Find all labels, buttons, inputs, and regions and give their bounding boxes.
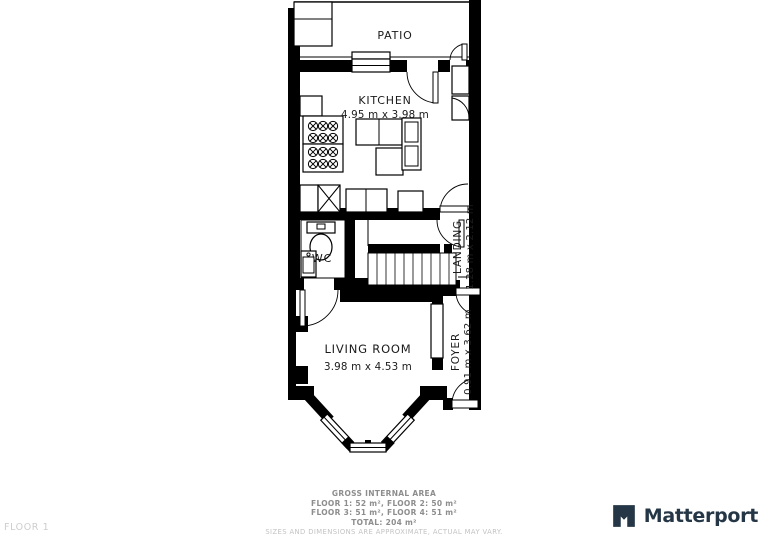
patio-label: PATIO [377,29,412,42]
disclaimer-text: SIZES AND DIMENSIONS ARE APPROXIMATE, AC… [0,528,768,538]
kitchen-fixtures [300,66,469,212]
bay-window [308,394,428,452]
gia-title: GROSS INTERNAL AREA [0,489,768,499]
matterport-branding: Matterport [611,503,758,529]
matterport-logo-icon [611,503,637,529]
landing-dims: 1.28 m x 2.12 m [465,204,476,290]
living-room-dims: 3.98 m x 4.53 m [324,361,412,373]
matterport-wordmark: Matterport [644,505,758,527]
foyer-label: FOYER [450,333,462,371]
kitchen-dims: 4.95 m x 3.98 m [341,109,429,121]
living-room-label: LIVING ROOM [324,342,411,356]
wc-fixtures [301,220,345,278]
floorplan-drawing: PATIO KITCHEN 4.95 m x 3.98 m WC LANDING… [0,0,768,480]
landing-label: LANDING [452,220,464,274]
foyer-dims: 0.91 m x 3.62 m [463,309,474,395]
floor-number-tag: FLOOR 1 [4,522,49,533]
kitchen-label: KITCHEN [358,94,411,107]
floorplan-page: PATIO KITCHEN 4.95 m x 3.98 m WC LANDING… [0,0,768,484]
staircase [368,253,456,285]
wc-label: WC [312,252,332,265]
